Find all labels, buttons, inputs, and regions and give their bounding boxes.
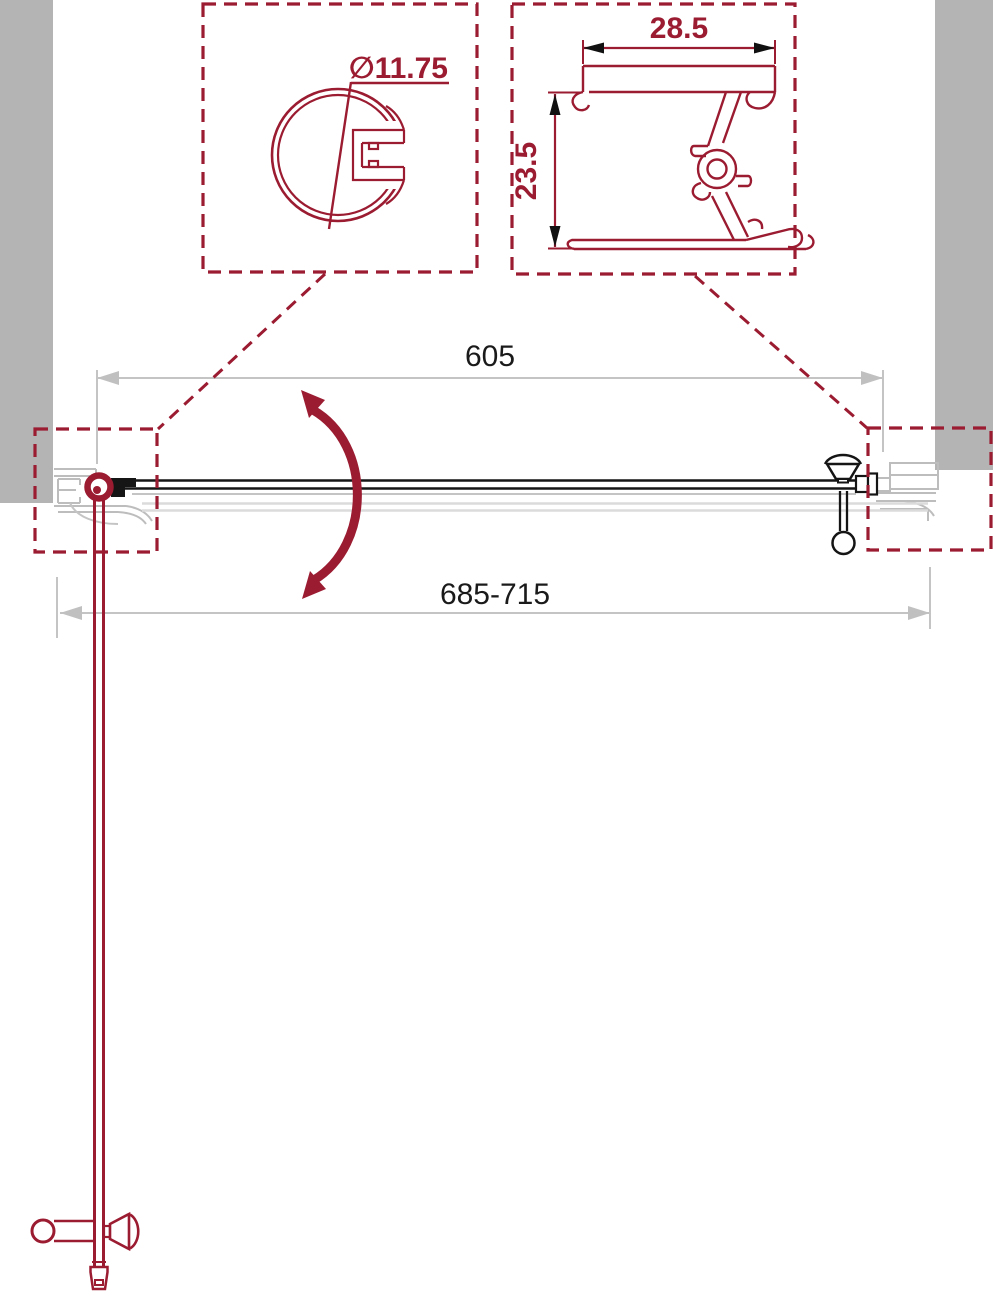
pivot-pin — [93, 486, 101, 494]
knob-body — [110, 1214, 129, 1249]
profile-diameter-label: ∅11.75 — [349, 52, 448, 85]
pivot-hinge — [88, 476, 111, 499]
knob-stem — [54, 1221, 94, 1241]
width-arrow-left — [583, 43, 604, 54]
dim-arrow-left — [97, 371, 119, 385]
dim-arrow-right — [908, 606, 930, 620]
overall-width-label: 685-715 — [440, 578, 550, 611]
door-open — [91, 499, 108, 1289]
drawing-page: 605 685-715 — [0, 0, 993, 1296]
knob-ring — [833, 532, 855, 554]
detail-round-profile: ∅11.75 — [272, 52, 449, 229]
dimension-685-715: 685-715 — [57, 567, 930, 638]
wall-profile-width-label: 28.5 — [650, 12, 708, 45]
right-wall-fill — [935, 0, 993, 470]
depth-arrow-top — [550, 94, 561, 115]
door-ghost-lines — [70, 494, 928, 524]
width-arrow-right — [754, 43, 775, 54]
leader-right — [695, 276, 867, 428]
magnet-strip-inner — [856, 476, 868, 492]
knob-cap — [130, 1215, 138, 1249]
dim-arrow-left — [60, 606, 82, 620]
leader-left — [158, 274, 325, 429]
knob-ring — [32, 1220, 54, 1242]
door-width-label: 605 — [465, 340, 515, 373]
knob-cap — [825, 455, 861, 464]
knob-neck — [838, 479, 848, 483]
wall-profile-depth-label: 23.5 — [510, 142, 543, 200]
right-wall-profile-outline — [876, 463, 938, 521]
wall-profile-shape — [568, 66, 814, 249]
detail-wall-profile: 28.5 23.5 — [510, 12, 813, 249]
dimension-605: 605 — [97, 340, 883, 464]
depth-ext-lines — [548, 93, 582, 249]
detail-box-round-profile — [203, 4, 477, 272]
depth-arrow-bottom — [550, 226, 561, 247]
diagram-svg: 605 685-715 — [0, 0, 993, 1296]
door-handle-open — [32, 1214, 138, 1249]
knob-body — [827, 464, 859, 479]
dim-arrow-right — [861, 371, 883, 385]
right-wall — [935, 0, 993, 470]
